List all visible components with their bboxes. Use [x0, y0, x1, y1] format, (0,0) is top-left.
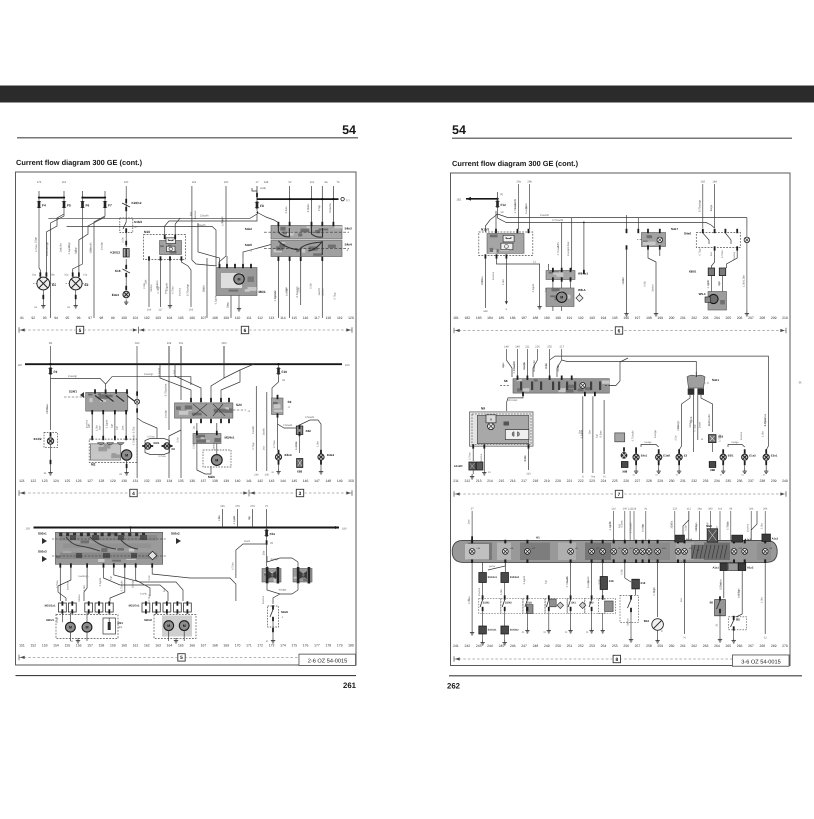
svg-text:K18: K18 [115, 269, 121, 273]
svg-text:1br/ws: 1br/ws [557, 364, 560, 372]
svg-text:134: 134 [167, 479, 173, 483]
svg-text:113: 113 [269, 316, 275, 320]
svg-text:123: 123 [42, 479, 48, 483]
svg-text:54: 54 [342, 123, 356, 137]
svg-text:S10/2: S10/2 [505, 602, 512, 605]
svg-text:100: 100 [121, 316, 127, 320]
svg-text:S10/1x1: S10/1x1 [488, 576, 498, 579]
svg-text:15sw/gr: 15sw/gr [144, 373, 153, 376]
svg-text:2R: 2R [270, 542, 273, 545]
svg-text:260: 260 [669, 644, 675, 648]
svg-text:109: 109 [147, 309, 152, 312]
svg-text:269: 269 [771, 644, 777, 648]
svg-text:128: 128 [99, 479, 105, 483]
svg-text:0.5bl: 0.5bl [644, 281, 647, 287]
svg-text:135: 135 [178, 479, 184, 483]
svg-text:223: 223 [673, 508, 678, 511]
svg-text:1.5br: 1.5br [218, 515, 221, 521]
svg-text:110: 110 [235, 316, 241, 320]
svg-text:129: 129 [110, 479, 116, 483]
svg-text:245: 245 [265, 474, 270, 477]
svg-text:S4x4: S4x4 [345, 243, 353, 247]
svg-text:1sw/bl: 1sw/bl [252, 426, 255, 434]
svg-text:182: 182 [464, 316, 470, 320]
svg-text:137: 137 [201, 479, 207, 483]
svg-text:8: 8 [615, 657, 618, 663]
svg-text:218: 218 [533, 479, 539, 483]
svg-text:1sw: 1sw [163, 588, 166, 593]
svg-text:2.5rt: 2.5rt [148, 575, 151, 580]
svg-text:M: M [560, 296, 563, 300]
svg-text:1br/ws: 1br/ws [78, 594, 81, 602]
svg-text:1sw/br/gn: 1sw/br/gn [78, 575, 89, 578]
svg-text:S4x3: S4x3 [345, 227, 353, 231]
svg-text:146: 146 [303, 479, 309, 483]
svg-text:76a: 76a [591, 476, 596, 479]
svg-text:1.5br: 1.5br [83, 585, 86, 591]
svg-text:254: 254 [601, 644, 607, 648]
svg-text:226: 226 [623, 479, 629, 483]
svg-text:95: 95 [66, 316, 70, 320]
svg-text:160: 160 [121, 644, 127, 648]
svg-text:15sw/h: 15sw/h [200, 215, 209, 218]
svg-text:125: 125 [65, 479, 71, 483]
svg-text:30a: 30a [516, 181, 521, 184]
svg-text:5: 5 [180, 655, 183, 661]
svg-text:1sw/ws: 1sw/ws [747, 523, 750, 532]
svg-text:217: 217 [521, 479, 527, 483]
svg-text:120: 120 [18, 364, 23, 367]
svg-text:16b: 16b [51, 274, 56, 277]
svg-text:A1: A1 [536, 536, 540, 540]
svg-text:195: 195 [612, 316, 618, 320]
svg-text:116: 116 [303, 316, 309, 320]
svg-text:S9: S9 [288, 400, 292, 404]
svg-text:x1/1: x1/1 [118, 626, 123, 629]
svg-text:118: 118 [326, 316, 332, 320]
svg-text:4: 4 [132, 491, 135, 497]
svg-text:1gr: 1gr [596, 434, 599, 438]
svg-text:1br/ws: 1br/ws [212, 442, 215, 450]
svg-text:117: 117 [158, 309, 163, 312]
svg-text:169: 169 [223, 644, 229, 648]
svg-text:1sw/gn: 1sw/gn [131, 579, 134, 588]
svg-text:S4x2: S4x2 [245, 227, 253, 231]
svg-text:325: 325 [220, 505, 225, 508]
svg-text:138: 138 [212, 479, 218, 483]
svg-text:S24: S24 [236, 403, 242, 407]
svg-text:Current flow diagram 300 GE (c: Current flow diagram 300 GE (cont.) [452, 159, 579, 168]
svg-text:F6: F6 [86, 204, 90, 208]
svg-text:2R: 2R [49, 342, 52, 345]
svg-text:184: 184 [712, 181, 717, 184]
svg-text:0.5gn/rt: 0.5gn/rt [99, 577, 102, 586]
svg-text:216: 216 [510, 479, 516, 483]
svg-text:124: 124 [53, 479, 59, 483]
svg-text:121: 121 [19, 479, 25, 483]
svg-text:N10: N10 [144, 230, 150, 234]
svg-text:1sw: 1sw [165, 290, 168, 295]
svg-text:0.5gn/rt: 0.5gn/rt [532, 283, 535, 292]
svg-text:1sw/rt: 1sw/rt [318, 288, 321, 295]
svg-text:1.5br: 1.5br [500, 589, 503, 595]
svg-text:0.75sw/ge: 0.75sw/ge [698, 199, 701, 212]
svg-text:29b: 29b [527, 181, 532, 184]
svg-text:1.5br: 1.5br [761, 523, 764, 529]
svg-text:243: 243 [476, 644, 482, 648]
svg-text:1gr: 1gr [502, 364, 505, 368]
svg-text:180: 180 [348, 644, 354, 648]
svg-text:223: 223 [589, 479, 595, 483]
svg-text:164: 164 [167, 644, 173, 648]
svg-text:276: 276 [250, 505, 255, 508]
svg-text:A1x2: A1x2 [747, 567, 754, 570]
svg-text:0.75s: 0.75s [133, 426, 136, 433]
svg-text:E4x1: E4x1 [641, 454, 648, 458]
svg-text:217: 217 [559, 346, 564, 349]
svg-text:152: 152 [30, 644, 36, 648]
svg-text:219: 219 [544, 479, 550, 483]
svg-text:139: 139 [223, 479, 229, 483]
svg-text:A1x2R: A1x2R [454, 464, 463, 468]
svg-text:97: 97 [88, 316, 92, 320]
svg-text:262: 262 [691, 644, 697, 648]
svg-text:0.75sw/bl: 0.75sw/bl [121, 580, 124, 591]
svg-text:1sw/gn: 1sw/gn [587, 579, 590, 588]
svg-text:120: 120 [348, 316, 354, 320]
svg-text:0.75sw/ws: 0.75sw/ws [165, 383, 168, 396]
svg-text:122: 122 [30, 479, 36, 483]
svg-text:229: 229 [657, 479, 663, 483]
svg-text:X88: X88 [710, 468, 715, 472]
svg-text:1br/ws: 1br/ws [652, 284, 655, 292]
svg-text:203: 203 [703, 316, 709, 320]
svg-text:0.75sw: 0.75sw [481, 276, 484, 284]
svg-text:239: 239 [771, 479, 777, 483]
svg-text:104: 104 [167, 316, 173, 320]
svg-text:x11: x11 [687, 508, 692, 511]
svg-text:189: 189 [544, 316, 550, 320]
svg-text:M2: M2 [91, 463, 96, 467]
svg-text:M21/1x1: M21/1x1 [45, 604, 56, 608]
svg-text:1sw/gn: 1sw/gn [165, 409, 168, 418]
svg-text:F4: F4 [42, 204, 46, 208]
svg-text:250: 250 [555, 644, 561, 648]
svg-text:1br: 1br [588, 430, 591, 434]
svg-text:227: 227 [635, 479, 641, 483]
svg-text:2.5rt: 2.5rt [177, 437, 180, 442]
svg-text:2(48): 2(48) [260, 187, 266, 190]
svg-text:0.5bl: 0.5bl [545, 363, 548, 369]
svg-text:176: 176 [303, 644, 309, 648]
svg-text:1sw/gn: 1sw/gn [286, 287, 289, 296]
svg-text:255: 255 [612, 644, 618, 648]
svg-text:100: 100 [224, 181, 229, 184]
svg-text:E3x4: E3x4 [285, 453, 292, 457]
svg-text:0.75sw/bl: 0.75sw/bl [133, 434, 136, 445]
svg-text:A1x3: A1x3 [772, 538, 779, 541]
svg-text:1sw/ws: 1sw/ws [86, 419, 89, 428]
svg-text:229: 229 [167, 342, 172, 345]
svg-text:170: 170 [235, 644, 241, 648]
svg-text:0.5gn/rt: 0.5gn/rt [68, 245, 71, 254]
svg-text:133: 133 [155, 479, 161, 483]
svg-text:201: 201 [680, 316, 686, 320]
svg-text:215: 215 [499, 479, 505, 483]
svg-text:0.5gn/rt: 0.5gn/rt [764, 417, 767, 426]
svg-text:198: 198 [646, 316, 652, 320]
svg-text:0.75sw: 0.75sw [56, 580, 59, 588]
svg-text:N10/1: N10/1 [481, 228, 490, 232]
svg-text:W9-3: W9-3 [699, 292, 706, 296]
svg-text:0.5bl: 0.5bl [677, 425, 680, 431]
svg-text:209: 209 [771, 316, 777, 320]
svg-text:X18: X18 [609, 580, 614, 583]
svg-text:1sw: 1sw [716, 526, 719, 531]
svg-text:266: 266 [737, 644, 743, 648]
svg-text:91: 91 [20, 316, 24, 320]
svg-text:248: 248 [533, 644, 539, 648]
svg-text:F8: F8 [260, 204, 264, 208]
svg-text:245: 245 [499, 644, 505, 648]
svg-text:119: 119 [337, 316, 343, 320]
svg-text:213: 213 [476, 479, 482, 483]
svg-text:1gr: 1gr [248, 516, 251, 520]
svg-text:172: 172 [257, 644, 263, 648]
svg-text:211: 211 [525, 346, 530, 349]
svg-text:1sw/ws: 1sw/ws [733, 251, 736, 260]
svg-text:263: 263 [703, 644, 709, 648]
svg-text:179: 179 [337, 644, 343, 648]
svg-text:0.75sw/bl: 0.75sw/bl [630, 522, 633, 533]
svg-text:1ws: 1ws [122, 425, 125, 430]
svg-text:6: 6 [618, 328, 621, 334]
svg-text:144: 144 [280, 479, 286, 483]
svg-text:0.75gr: 0.75gr [252, 442, 255, 449]
svg-text:1br/ws: 1br/ws [627, 618, 630, 626]
svg-text:M: M [238, 278, 241, 282]
svg-text:157: 157 [87, 644, 93, 648]
svg-text:185: 185 [499, 316, 505, 320]
svg-text:0.75sw: 0.75sw [719, 582, 722, 590]
svg-text:30e: 30e [263, 550, 266, 555]
svg-text:220: 220 [526, 473, 531, 476]
svg-text:2R3: 2R3 [222, 342, 227, 345]
svg-text:0.75gr: 0.75gr [698, 248, 701, 255]
svg-text:0.75sw: 0.75sw [721, 250, 724, 258]
svg-text:1sw/ws: 1sw/ws [492, 271, 495, 280]
svg-text:106: 106 [189, 316, 195, 320]
svg-text:380: 380 [708, 508, 713, 511]
svg-text:235: 235 [725, 479, 731, 483]
svg-text:Current flow diagram 300 GE (c: Current flow diagram 300 GE (cont.) [16, 158, 143, 167]
svg-text:214: 214 [487, 479, 493, 483]
svg-text:200: 200 [669, 316, 675, 320]
svg-text:246: 246 [510, 644, 516, 648]
svg-text:1.5br: 1.5br [317, 441, 320, 447]
svg-text:210: 210 [612, 508, 617, 511]
svg-text:X88: X88 [622, 470, 627, 474]
svg-text:211: 211 [453, 479, 459, 483]
svg-text:3-6 OZ 54-0015: 3-6 OZ 54-0015 [741, 659, 781, 665]
svg-text:154: 154 [53, 644, 59, 648]
svg-text:W8-A: W8-A [578, 288, 586, 292]
svg-text:9s/ge: 9s/ge [710, 204, 713, 211]
svg-text:224: 224 [601, 479, 607, 483]
svg-text:1sw/gn: 1sw/gn [525, 205, 528, 214]
svg-text:176: 176 [37, 181, 42, 184]
svg-text:1sw/ws: 1sw/ws [179, 287, 182, 296]
svg-text:257: 257 [635, 644, 641, 648]
svg-text:1.5br: 1.5br [96, 425, 99, 431]
svg-text:X88: X88 [297, 470, 303, 474]
svg-text:M2/4x1: M2/4x1 [225, 436, 235, 440]
svg-text:127: 127 [87, 479, 93, 483]
svg-text:E4x4: E4x4 [327, 453, 334, 457]
svg-text:206: 206 [737, 316, 743, 320]
svg-text:148: 148 [325, 479, 331, 483]
svg-text:5: 5 [79, 328, 82, 334]
svg-text:183: 183 [701, 181, 706, 184]
svg-text:30 br/ws: 30 br/ws [508, 399, 518, 402]
svg-text:0.75gr: 0.75gr [157, 286, 160, 293]
svg-text:242: 242 [464, 644, 470, 648]
svg-text:0.5gn/rt: 0.5gn/rt [215, 295, 218, 304]
svg-text:M: M [86, 626, 89, 630]
svg-text:261: 261 [343, 681, 357, 690]
svg-text:M6/1: M6/1 [259, 290, 266, 294]
svg-text:M21: M21 [118, 621, 124, 625]
svg-text:234: 234 [254, 474, 259, 477]
svg-text:1gr: 1gr [110, 576, 113, 580]
svg-text:142: 142 [257, 479, 263, 483]
svg-text:1sw/ws: 1sw/ws [738, 589, 741, 598]
svg-text:2.5rt: 2.5rt [122, 237, 125, 242]
svg-text:1sw: 1sw [99, 426, 102, 431]
svg-text:0.75sw/gn: 0.75sw/gn [187, 283, 190, 296]
svg-text:143: 143 [269, 479, 275, 483]
svg-text:1sw/gn: 1sw/gn [567, 247, 570, 256]
svg-text:0.5bl: 0.5bl [56, 617, 59, 623]
svg-text:S1D: S1D [527, 602, 532, 605]
svg-text:1sw/r: 1sw/r [699, 422, 702, 429]
svg-text:234: 234 [714, 479, 720, 483]
svg-text:206: 206 [623, 508, 628, 511]
svg-text:M: M [215, 459, 218, 463]
svg-text:148: 148 [483, 310, 488, 313]
svg-text:0.5sw/bl: 0.5sw/bl [283, 424, 293, 427]
svg-text:0.75sw: 0.75sw [726, 522, 729, 530]
svg-text:15gn: 15gn [46, 242, 49, 248]
svg-text:heelge: heelge [644, 441, 652, 444]
svg-text:C: C [661, 630, 663, 633]
svg-text:99: 99 [111, 316, 115, 320]
svg-text:148: 148 [504, 346, 509, 349]
svg-text:0.5gn/rt: 0.5gn/rt [523, 575, 526, 584]
svg-text:1.5br: 1.5br [60, 243, 63, 249]
svg-text:S16/2: S16/2 [134, 220, 142, 224]
svg-text:7b: 7b [337, 181, 340, 184]
svg-text:231: 231 [680, 479, 686, 483]
svg-text:126: 126 [76, 479, 82, 483]
svg-text:1.5sw: 1.5sw [567, 241, 570, 248]
svg-text:M21/7x1: M21/7x1 [129, 604, 140, 608]
svg-text:167: 167 [201, 644, 207, 648]
svg-text:15sw/gr: 15sw/gr [68, 375, 77, 378]
svg-text:181: 181 [453, 316, 459, 320]
svg-text:1br/ws: 1br/ws [689, 420, 692, 428]
svg-text:177: 177 [314, 644, 320, 648]
svg-text:1sw/br: 1sw/br [140, 593, 147, 596]
svg-text:136: 136 [189, 479, 195, 483]
svg-text:0.75sw/bl: 0.75sw/bl [513, 362, 516, 373]
svg-text:187: 187 [521, 316, 527, 320]
svg-text:141: 141 [246, 479, 252, 483]
svg-text:S4x8: S4x8 [281, 610, 288, 614]
svg-text:15sw/bl: 15sw/bl [540, 214, 549, 217]
svg-text:270: 270 [782, 644, 788, 648]
svg-text:130: 130 [121, 479, 127, 483]
svg-text:112: 112 [257, 316, 263, 320]
svg-text:9a: 9a [325, 181, 328, 184]
svg-text:0.75sw/bl: 0.75sw/bl [552, 219, 563, 222]
svg-text:1.5br: 1.5br [524, 455, 527, 461]
svg-text:183: 183 [476, 316, 482, 320]
svg-text:1.5br: 1.5br [742, 275, 745, 281]
svg-text:261: 261 [680, 644, 686, 648]
svg-text:0.75sw: 0.75sw [273, 440, 276, 448]
svg-text:182: 182 [456, 198, 461, 202]
svg-text:107: 107 [201, 316, 207, 320]
svg-text:204: 204 [714, 316, 720, 320]
svg-text:0.75sw/bl: 0.75sw/bl [274, 290, 277, 301]
svg-text:1gr: 1gr [618, 524, 621, 528]
svg-text:150: 150 [348, 479, 354, 483]
svg-text:1br/ws: 1br/ws [695, 524, 698, 532]
svg-text:E3: E3 [684, 454, 688, 458]
svg-text:B5: B5 [736, 618, 740, 622]
svg-text:236: 236 [737, 479, 743, 483]
svg-text:2.5gr: 2.5gr [318, 205, 321, 211]
svg-text:147: 147 [314, 479, 320, 483]
svg-text:221: 221 [567, 479, 573, 483]
svg-text:1sw/ws: 1sw/ws [67, 581, 70, 590]
svg-text:0.5bl/w: 0.5bl/w [307, 204, 310, 213]
svg-text:0.5gn/rt: 0.5gn/rt [106, 419, 109, 428]
svg-text:S23: S23 [135, 342, 140, 345]
svg-text:16a: 16a [64, 274, 69, 277]
svg-text:166: 166 [189, 644, 195, 648]
svg-text:1sw/ws: 1sw/ws [478, 587, 481, 596]
svg-text:E2: E2 [85, 283, 89, 287]
svg-text:191: 191 [567, 316, 573, 320]
svg-text:101: 101 [133, 316, 139, 320]
svg-text:1sw: 1sw [710, 252, 713, 257]
svg-text:178: 178 [325, 644, 331, 648]
svg-text:16a: 16a [32, 274, 37, 277]
svg-text:B12: B12 [644, 619, 650, 623]
svg-text:98: 98 [100, 316, 104, 320]
svg-text:168: 168 [212, 644, 218, 648]
svg-text:0.75sw: 0.75sw [147, 436, 155, 439]
svg-text:heelge: heelge [279, 589, 287, 592]
svg-text:296: 296 [763, 508, 768, 511]
svg-text:E6/1: E6/1 [154, 441, 160, 445]
svg-text:S10/1x1: S10/1x1 [488, 629, 498, 632]
svg-text:174: 174 [280, 644, 286, 648]
svg-text:31: 31 [716, 623, 719, 626]
svg-text:1gr: 1gr [74, 250, 77, 254]
